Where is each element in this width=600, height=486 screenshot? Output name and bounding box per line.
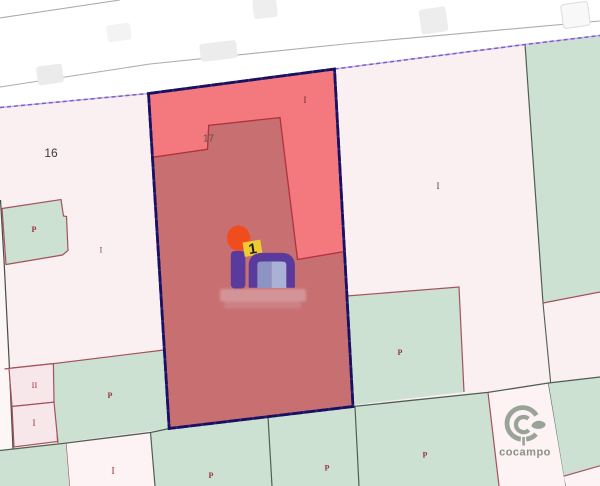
svg-text:I: I bbox=[100, 246, 103, 255]
svg-text:16: 16 bbox=[44, 146, 58, 160]
svg-text:P: P bbox=[398, 348, 403, 357]
svg-text:I: I bbox=[111, 466, 114, 477]
svg-text:P: P bbox=[32, 225, 37, 234]
svg-text:P: P bbox=[423, 451, 428, 460]
svg-text:I: I bbox=[33, 418, 36, 428]
svg-text:I: I bbox=[304, 95, 307, 105]
svg-text:II: II bbox=[32, 380, 38, 390]
svg-text:P: P bbox=[209, 471, 214, 480]
svg-text:cocampo: cocampo bbox=[499, 447, 551, 459]
svg-text:I: I bbox=[437, 181, 440, 191]
svg-text:17: 17 bbox=[203, 134, 215, 145]
svg-text:P: P bbox=[108, 391, 113, 400]
svg-text:P: P bbox=[325, 464, 330, 473]
